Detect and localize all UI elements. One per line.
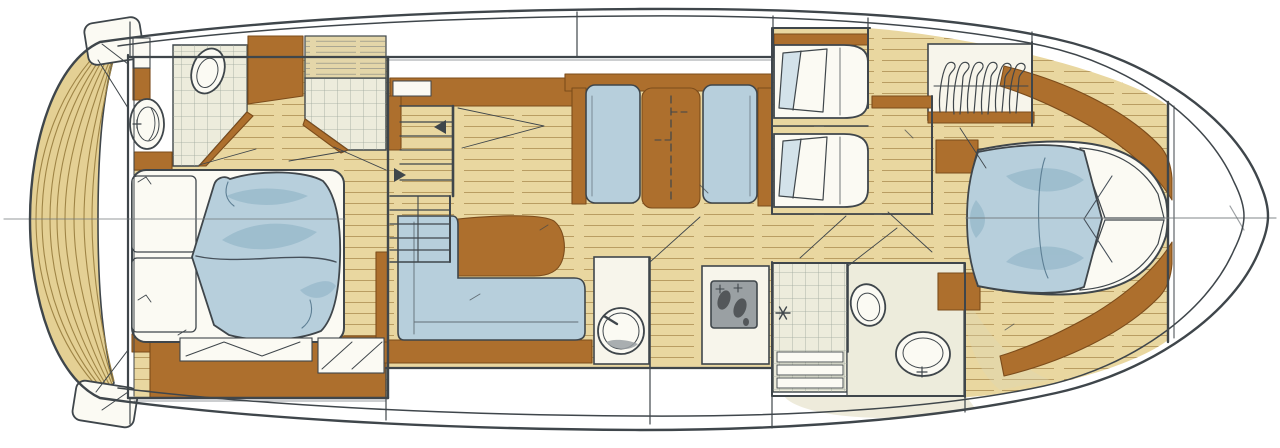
bedside-shelf-top [134, 152, 172, 170]
dinette-starboard-armrest [758, 88, 772, 206]
yacht-floor-plan-canvas [0, 0, 1280, 448]
forward-dresser-bottom [938, 273, 980, 310]
forward-duvet [967, 145, 1102, 293]
guest-berth-shelf [774, 34, 868, 45]
guest-cabinet [872, 96, 932, 108]
aft-head-wardrobe [248, 36, 303, 104]
bulkhead-cabinet-strip [376, 252, 388, 342]
coffee-table [458, 216, 564, 276]
dinette-port-armrest [572, 88, 586, 204]
pillow [132, 258, 196, 332]
galley-sink [598, 308, 644, 354]
cabinet-inset [393, 81, 431, 96]
aft-berth [132, 170, 344, 342]
saloon-sideboard [362, 340, 592, 363]
stair-handrail-block [388, 96, 401, 150]
shower-grate [777, 352, 843, 388]
forward-dresser-top [936, 140, 978, 173]
dinette-port-settee [586, 85, 640, 203]
transom-locker [133, 68, 150, 100]
aft-washbasin [130, 99, 164, 149]
stove [711, 281, 757, 328]
day-basin [896, 332, 950, 377]
pillow [132, 176, 196, 252]
floor-plan-drawing [0, 0, 1280, 448]
locker-sill [928, 112, 1034, 123]
dinette-starboard-settee [703, 85, 757, 203]
